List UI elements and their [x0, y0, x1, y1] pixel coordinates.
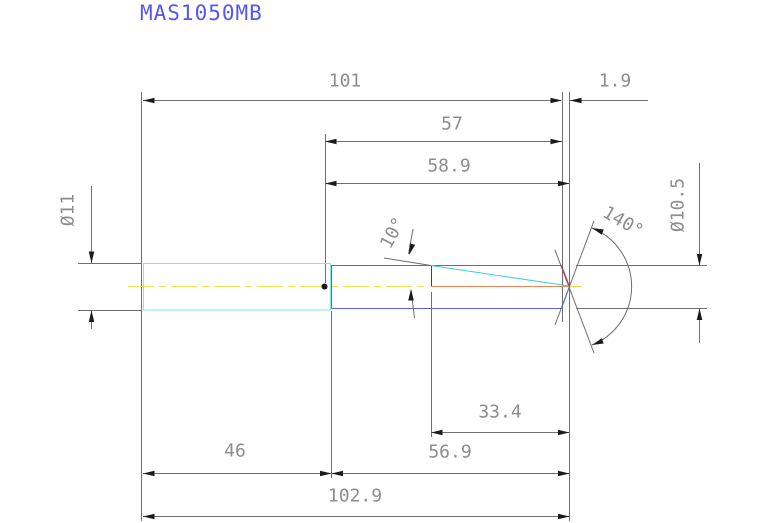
- dim-cut-diameter-label: Ø10.5: [668, 178, 689, 232]
- taper-line: [431, 266, 569, 287]
- dim-body-length-label: 56.9: [428, 442, 471, 463]
- dim-shank-length-label: 46: [224, 441, 246, 462]
- extension-lines: [78, 92, 707, 521]
- part-geometry: [128, 264, 582, 311]
- cad-drawing-canvas: MAS1050MB 101 1.9 57 58.9 Ø11 Ø10.5 10° …: [0, 0, 767, 523]
- node-marker: [322, 284, 328, 290]
- dim-flute-length-to-point-label: 58.9: [427, 156, 470, 177]
- dim-point-length-label: 1.9: [599, 71, 632, 92]
- cad-drawing-svg: [0, 0, 767, 523]
- drawing-title: MAS1050MB: [140, 1, 263, 25]
- dim-body-plus-shank-length-label: 101: [329, 71, 362, 92]
- dim-tip-section-length-label: 33.4: [478, 402, 521, 423]
- angle-arc-140: [592, 228, 632, 345]
- dim-overall-length-label: 102.9: [328, 486, 382, 507]
- dim-shank-diameter-label: Ø11: [58, 194, 79, 227]
- dim-flute-length-label: 57: [441, 114, 463, 135]
